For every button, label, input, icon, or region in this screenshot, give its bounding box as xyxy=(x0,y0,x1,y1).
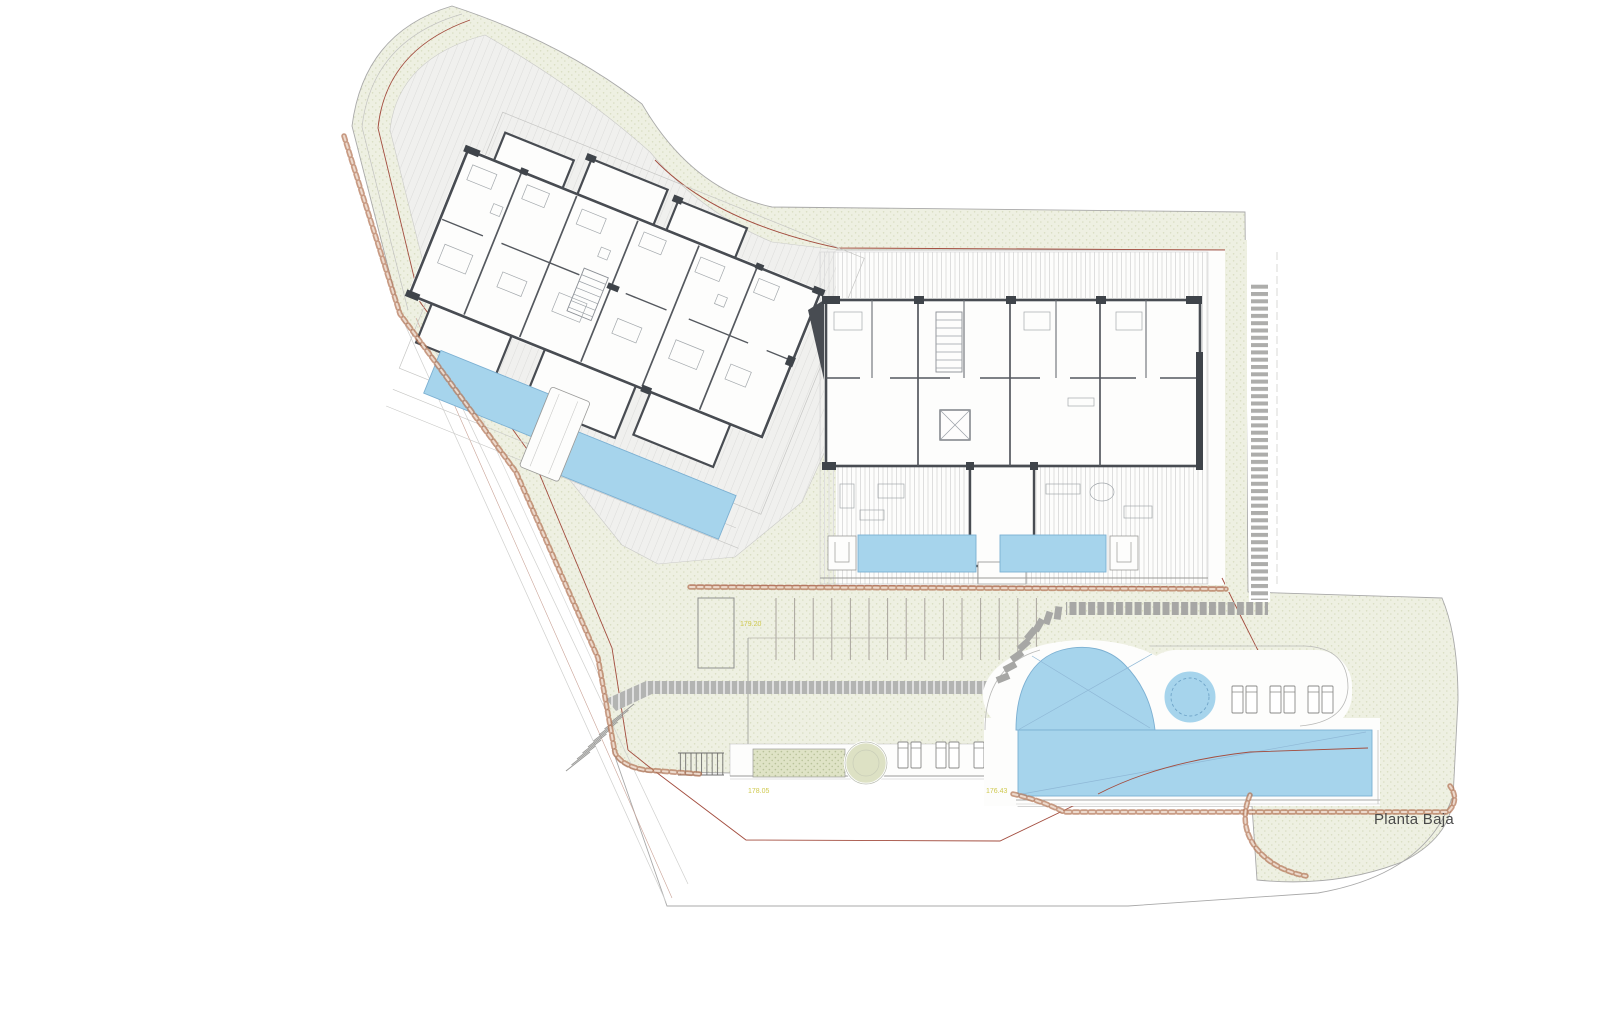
elevation-label-west: 178.05 xyxy=(748,788,770,795)
elevation-label-east: 176.43 xyxy=(986,788,1008,795)
green-strip-east xyxy=(1225,240,1247,592)
east-terrace-pool-west xyxy=(858,535,976,572)
paver-path-row xyxy=(1066,602,1268,615)
tree-icon xyxy=(845,742,887,784)
site-plan-sheet: 179.20 178.05 176.43 Planta Baja xyxy=(0,0,1600,1024)
floor-title: Planta Baja xyxy=(1374,811,1454,828)
planter-strip xyxy=(753,749,845,777)
east-terrace-pool-east xyxy=(1000,535,1106,572)
site-plan-drawing: 179.20 178.05 176.43 Planta Baja xyxy=(0,0,1600,1024)
elevation-label-parking: 179.20 xyxy=(740,621,762,628)
pergola-steps-icon xyxy=(1251,282,1268,600)
